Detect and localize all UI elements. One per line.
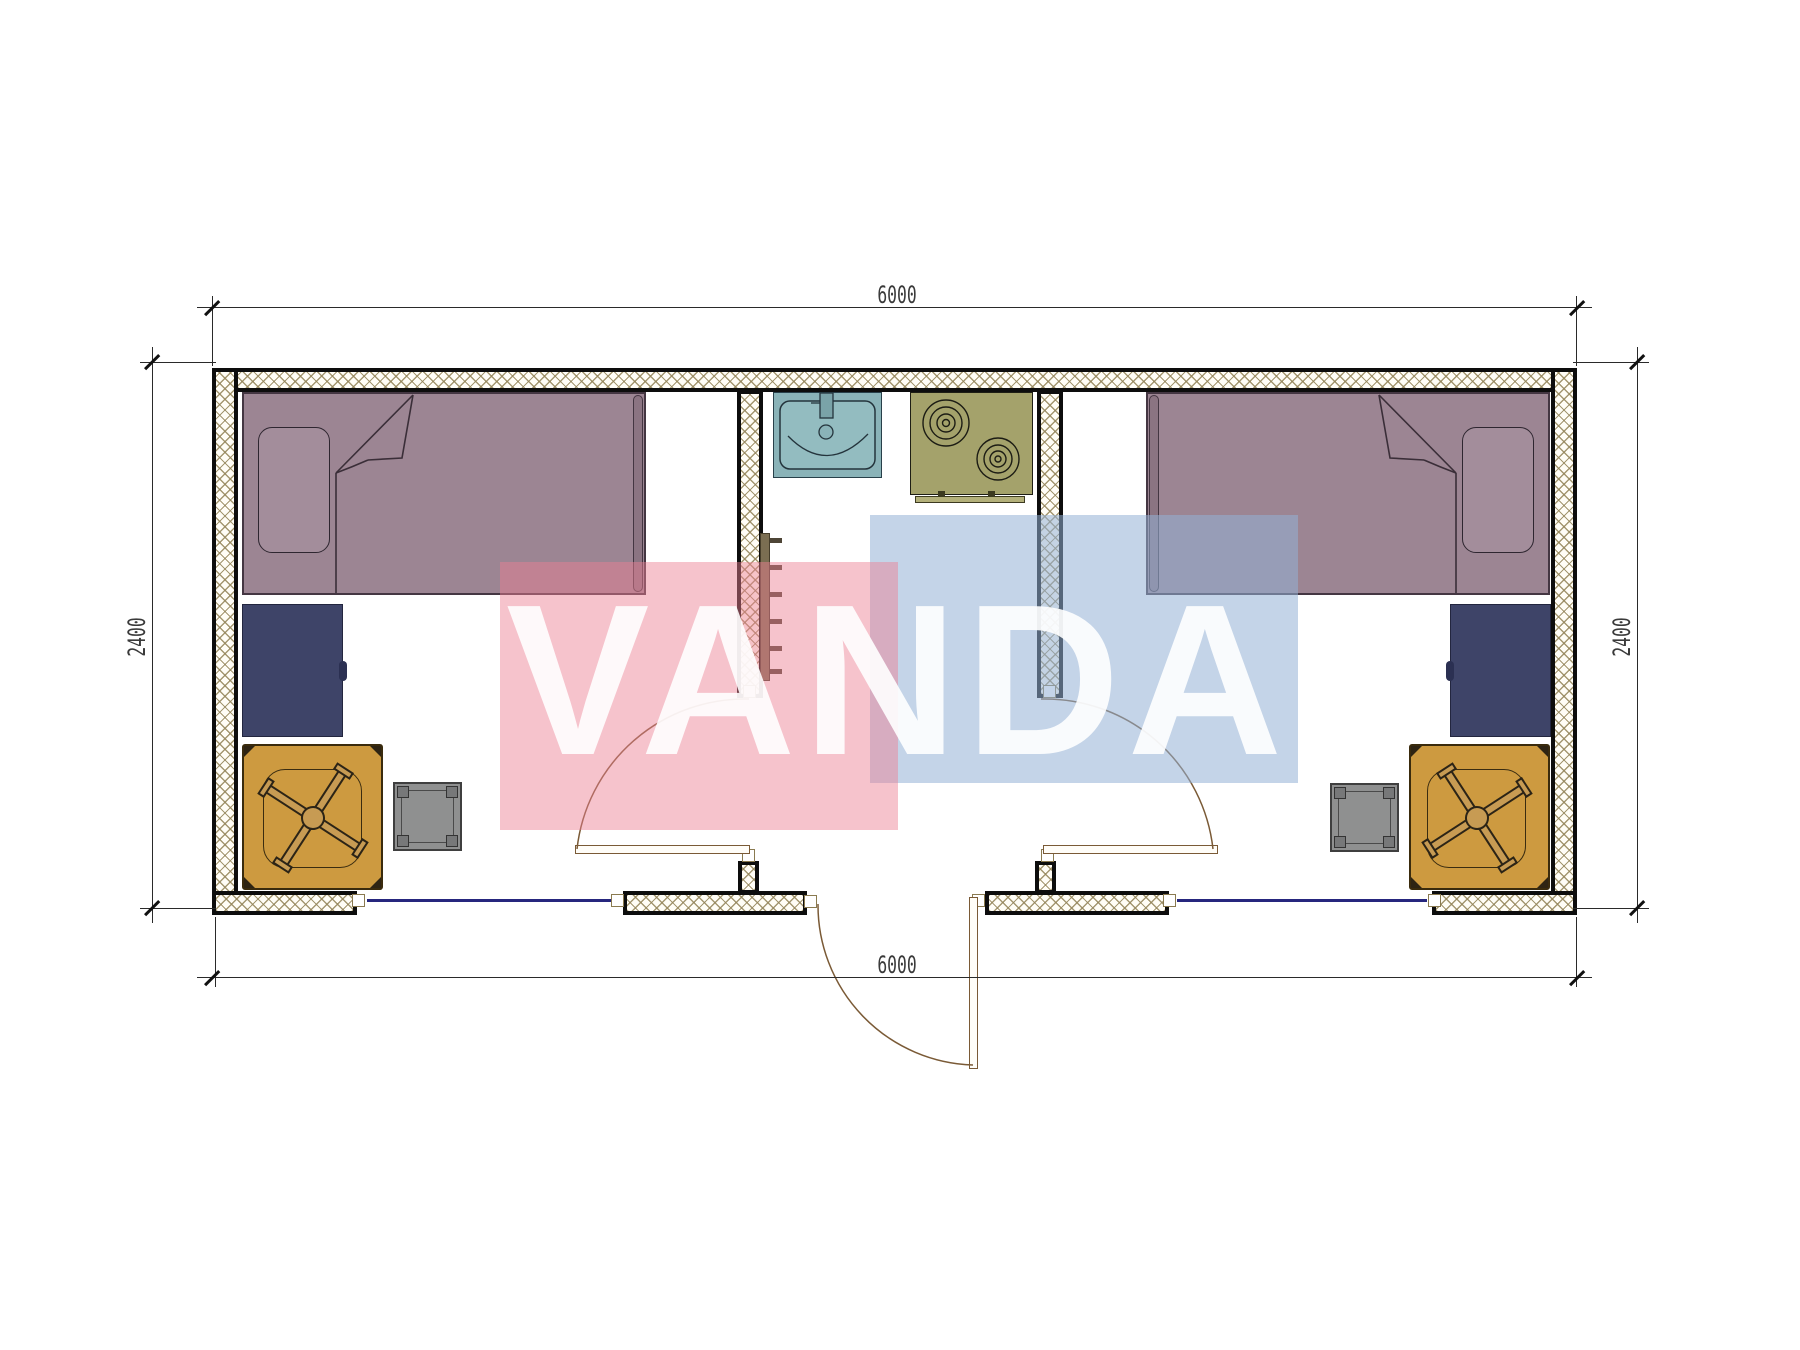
window-left-jamb-a: [352, 894, 365, 907]
stool-left: [393, 782, 462, 851]
wall-right: [1551, 368, 1577, 915]
stool-leg: [446, 835, 458, 847]
dim-label-top: 6000: [877, 281, 916, 309]
desk-right-corner-mark: [1537, 877, 1548, 888]
window-right-jamb-a: [1163, 894, 1176, 907]
bed-left-pillow: [258, 427, 330, 553]
watermark-text: VANDA: [506, 572, 1290, 787]
wall-left: [212, 368, 238, 915]
wardrobe-right: [1450, 604, 1551, 737]
wardrobe-right-knob: [1446, 661, 1454, 681]
wall-stub-right: [1035, 861, 1056, 894]
wall-bottom-right-segment: [1432, 891, 1577, 915]
door-leaf-entry: [969, 897, 978, 1069]
dim-label-right: 2400: [1608, 617, 1636, 656]
stool-leg: [1334, 787, 1346, 799]
wall-bottom-left-door-jamb-segment: [623, 891, 807, 915]
desk-right-corner-mark: [1537, 746, 1548, 757]
dim-line-right: [1637, 347, 1638, 923]
wall-top: [212, 368, 1577, 392]
coat-rack-peg: [770, 538, 782, 543]
dim-label-bottom: 6000: [877, 951, 916, 979]
dim-line-left: [152, 347, 153, 923]
door-leaf-right-room: [1043, 845, 1218, 854]
stool-leg: [1334, 836, 1346, 848]
cooktop: [910, 392, 1033, 495]
bed-right-pillow: [1462, 427, 1534, 553]
stool-leg: [446, 786, 458, 798]
desk-left-corner-mark: [244, 877, 255, 888]
window-right: [1177, 899, 1427, 902]
door-leaf-left-room: [575, 845, 750, 854]
office-chair-left-seat: [263, 769, 362, 868]
window-left-jamb-b: [611, 894, 624, 907]
wardrobe-left: [242, 604, 343, 737]
stool-leg: [1383, 836, 1395, 848]
wardrobe-left-knob: [339, 661, 347, 681]
wall-stub-left: [738, 861, 759, 894]
cooktop-handle: [915, 496, 1025, 503]
desk-right-corner-mark: [1411, 877, 1422, 888]
desk-left-corner-mark: [370, 877, 381, 888]
stool-leg: [1383, 787, 1395, 799]
stool-right: [1330, 783, 1399, 852]
dim-label-left: 2400: [123, 617, 151, 656]
stool-leg: [397, 786, 409, 798]
office-chair-right-seat: [1427, 769, 1526, 868]
wall-bottom-right-door-jamb-segment: [985, 891, 1169, 915]
desk-left-corner-mark: [370, 746, 381, 757]
wash-basin: [773, 392, 882, 478]
entry-door-jamb-a: [804, 895, 817, 908]
desk-left-corner-mark: [244, 746, 255, 757]
wall-bottom-left-segment: [212, 891, 357, 915]
desk-right-corner-mark: [1411, 746, 1422, 757]
stool-leg: [397, 835, 409, 847]
window-right-jamb-b: [1428, 894, 1441, 907]
floor-plan-canvas: 6000 6000 2400 2400 VANDA: [0, 0, 1800, 1350]
window-left: [367, 899, 611, 902]
